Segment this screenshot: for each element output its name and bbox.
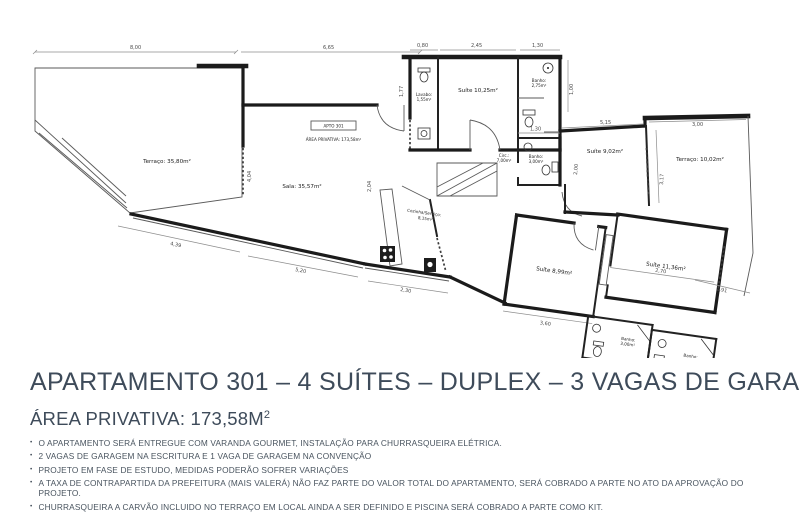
- room-label-circ-2: 7,00m²: [497, 158, 512, 163]
- dim-5-15: 5,15: [600, 120, 611, 126]
- area-subtitle: ÁREA PRIVATIVA: 173,58M2: [30, 408, 770, 430]
- bullet-icon: •: [30, 478, 32, 488]
- room-label-cozinha-2: 8,15m²: [418, 215, 434, 222]
- room-label-terraco2: Terraço: 10,02m²: [675, 156, 724, 163]
- area-subtitle-text: ÁREA PRIVATIVA: 173,58M: [30, 408, 264, 429]
- sink-icon: [418, 128, 430, 139]
- toilet-icon: [592, 341, 604, 357]
- note-item: •2 VAGAS DE GARAGEM NA ESCRITURA E 1 VAG…: [30, 451, 770, 461]
- bullet-icon: •: [30, 502, 32, 512]
- sink-icon: [592, 324, 601, 333]
- lower-right-wing: Suíte 8,99m² 3,60 Suíte 11,36m² 2,70 Ban…: [495, 200, 731, 358]
- room-label-banho3-2: 3,00m²: [620, 341, 636, 348]
- dim-4-39: 4,39: [170, 241, 182, 249]
- door-arc-suite3: [571, 223, 597, 250]
- floor-plan-drawing: 8,00 6,65 0,80 2,45 1,30 Terraço: 35,80m…: [0, 0, 800, 358]
- dim-2-00: 2,00: [573, 164, 580, 176]
- dim-6-65: 6,65: [323, 45, 334, 51]
- toilet-icon: [418, 68, 430, 82]
- note-item: •A TAXA DE CONTRAPARTIDA DA PREFEITURA (…: [30, 478, 770, 498]
- kitchen: Cozinha/Serviço: 8,15m²: [380, 186, 446, 272]
- area-privativa-plan-label: ÁREA PRIVATIVA: 173,58m²: [306, 137, 362, 142]
- dim-2-30: 2,30: [400, 287, 412, 295]
- dim-4-04: 4,04: [247, 171, 253, 182]
- dim-5-20: 5,20: [295, 267, 307, 275]
- dim-3-60: 3,60: [539, 320, 551, 327]
- note-text: 2 VAGAS DE GARAGEM NA ESCRITURA E 1 VAGA…: [38, 451, 371, 461]
- note-item: •O APARTAMENTO SERÁ ENTREGUE COM VARANDA…: [30, 438, 770, 448]
- dim-0-80: 0,80: [417, 43, 428, 49]
- banho3: Banho: 3,00m² 2,95: [580, 316, 653, 358]
- room-label-lavabo-2: 1,55m²: [417, 97, 432, 102]
- bullet-icon: •: [30, 438, 32, 448]
- room-label-suite3: Suíte 8,99m²: [536, 265, 573, 277]
- note-text: PROJETO EM FASE DE ESTUDO, MEDIDAS PODER…: [38, 465, 348, 475]
- dim-1-30-mid: 1,30: [530, 127, 541, 133]
- terrace-left: Terraço: 35,80m²: [35, 66, 246, 213]
- window-hatch-kitchen: [437, 238, 446, 272]
- dim-1-30-top: 1,30: [532, 43, 543, 49]
- door-arc-suite1: [470, 120, 500, 150]
- door-arc-sala: [377, 105, 404, 131]
- toilet-icon: [653, 355, 665, 358]
- dim-8-00: 8,00: [130, 45, 141, 51]
- dim-right-edge: 1,91: [695, 280, 750, 295]
- note-item: •PROJETO EM FASE DE ESTUDO, MEDIDAS PODE…: [30, 465, 770, 475]
- dimension-lines-top: 8,00 6,65 0,80 2,45 1,30: [33, 43, 560, 54]
- dim-3-17: 3,17: [659, 174, 666, 185]
- dim-3-00: 3,00: [692, 122, 703, 128]
- page-title: APARTAMENTO 301 – 4 SUÍTES – DUPLEX – 3 …: [30, 368, 770, 397]
- note-text: O APARTAMENTO SERÁ ENTREGUE COM VARANDA …: [38, 438, 501, 448]
- bullet-icon: •: [30, 465, 32, 475]
- apto-label: APTO 301: [323, 124, 344, 129]
- room-label-suite2: Suíte 9,02m²: [587, 148, 623, 155]
- terrace2-edge: [744, 116, 753, 296]
- note-text: A TAXA DE CONTRAPARTIDA DA PREFEITURA (M…: [38, 478, 770, 498]
- banho4: Banho: 2,90m² 2,90: [644, 330, 717, 358]
- note-item: •CHURRASQUEIRA A CARVÃO INCLUIDO NO TERR…: [30, 502, 770, 512]
- sink-icon: [424, 258, 436, 272]
- shower-icon: [543, 63, 553, 73]
- info-section: APARTAMENTO 301 – 4 SUÍTES – DUPLEX – 3 …: [0, 358, 800, 512]
- sink-icon: [658, 339, 667, 348]
- bullet-icon: •: [30, 451, 32, 461]
- circ-banho2: 1,30 Circ.: 7,00m² Banho: 3,00m²: [497, 127, 582, 217]
- dim-1-00: 1,00: [569, 84, 575, 95]
- stairs-icon: [437, 163, 497, 196]
- floor-plan-region: 8,00 6,65 0,80 2,45 1,30 Terraço: 35,80m…: [0, 0, 800, 358]
- toilet-icon: [542, 162, 558, 175]
- toilet-icon: [523, 110, 535, 127]
- area-superscript: 2: [264, 409, 270, 421]
- room-label-banho1-2: 2,75m²: [532, 83, 547, 88]
- dim-2-45: 2,45: [471, 43, 482, 49]
- room-label-suite1: Suíte 10,25m²: [458, 87, 498, 94]
- room-label-sala: Sala: 35,57m²: [282, 183, 321, 190]
- notes-list: •O APARTAMENTO SERÁ ENTREGUE COM VARANDA…: [30, 438, 770, 512]
- room-label-terraco1: Terraço: 35,80m²: [142, 158, 191, 165]
- dim-2-04: 2,04: [367, 181, 373, 192]
- bottom-boundary: 4,39 5,20 2,30: [118, 214, 505, 303]
- room-label-banho2-2: 3,00m²: [529, 159, 544, 164]
- dim-1-77: 1,77: [399, 86, 405, 97]
- sala: APTO 301 ÁREA PRIVATIVA: 173,58m² Sala: …: [243, 105, 404, 192]
- suite-10-block: Suíte 10,25m² Lavabo: 1,55m² Banho: 2,75…: [399, 57, 575, 150]
- note-text: CHURRASQUEIRA A CARVÃO INCLUIDO NO TERRA…: [38, 502, 603, 512]
- stove-icon: [380, 246, 395, 262]
